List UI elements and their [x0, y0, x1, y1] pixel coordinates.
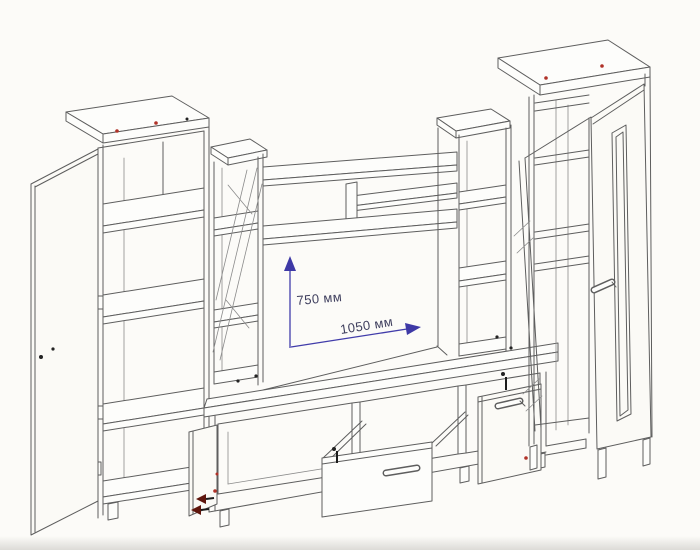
right-display-column: [437, 109, 513, 356]
right-arrowhead: [405, 323, 421, 335]
niche-width-label: 1050 мм: [339, 314, 394, 337]
wardrobe-leg: [598, 448, 606, 479]
wall-shelves: [263, 152, 457, 245]
up-arrowhead: [284, 256, 296, 271]
drawer-handle: [386, 468, 417, 473]
stand-leg: [460, 466, 469, 483]
door-knob: [39, 355, 43, 359]
glass-door-marks: [213, 168, 262, 360]
drawer-front: [322, 442, 432, 517]
niche-dimensions: 750 мм 1050 мм: [284, 256, 421, 348]
wardrobe-door: [591, 84, 651, 449]
wardrobe-leg: [530, 445, 537, 470]
stand-leg: [220, 509, 229, 527]
wardrobe-leg: [643, 438, 650, 466]
left-tall-cabinet: [31, 96, 209, 535]
left-display-column: [211, 139, 267, 385]
tv-stand-drawer: [322, 412, 468, 517]
wardrobe-interior: [535, 95, 589, 433]
niche-height-label: 750 мм: [296, 289, 343, 308]
tv-stand-open-left-door: [189, 425, 219, 516]
cabinet-open-door: [31, 149, 98, 535]
furniture-assembly-diagram: 750 мм 1050 мм: [0, 0, 700, 550]
cabinet-leg: [108, 502, 118, 520]
wardrobe-open-glass-door: [514, 117, 591, 431]
